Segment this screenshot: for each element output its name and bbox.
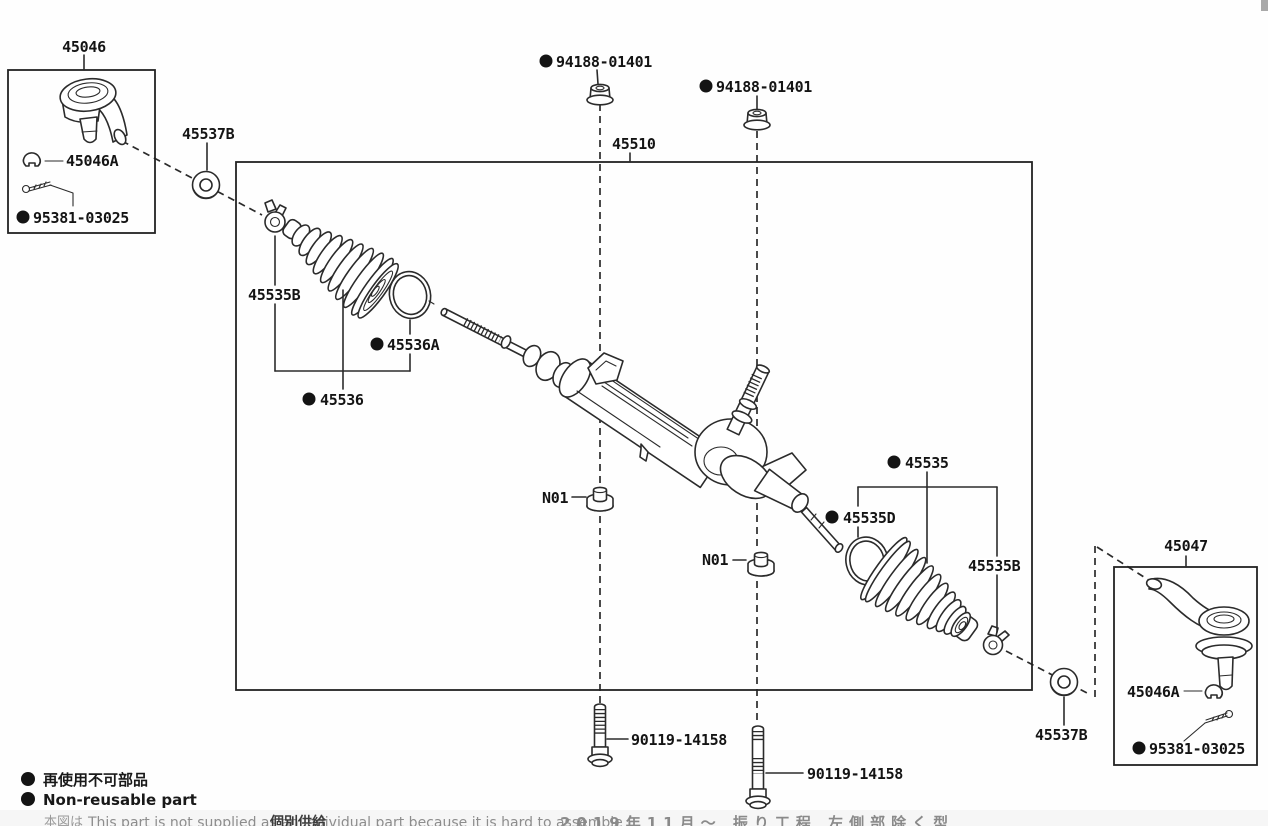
nut-45537B-left [193, 143, 220, 199]
non-reusable-bullet [540, 55, 553, 68]
bolt-90119-2 [746, 726, 803, 808]
label-45535B-right: 45535B [968, 557, 1021, 575]
label-N01-2: N01 [702, 551, 728, 569]
clip-icon-right [1205, 685, 1222, 698]
parts-diagram-page: 45046 45046A 95381-03025 45537B 94188-01… [0, 0, 1268, 826]
label-45535: 45535 [905, 454, 949, 472]
label-45046A-right: 45046A [1127, 683, 1180, 701]
boot-clamp-left [265, 200, 286, 232]
non-reusable-bullet [826, 511, 839, 524]
label-45537B-left: 45537B [182, 125, 235, 143]
label-94188-1: 94188-01401 [556, 53, 652, 71]
nut-N01-2 [733, 552, 774, 576]
exploded-diagram: 45046 45046A 95381-03025 45537B 94188-01… [0, 0, 1268, 826]
label-95381-left: 95381-03025 [33, 209, 129, 227]
non-reusable-bullet [17, 211, 30, 224]
tie-rod-end-right-drawing [1145, 577, 1252, 741]
label-45537B-right: 45537B [1035, 726, 1088, 744]
non-reusable-bullet [888, 456, 901, 469]
boot-left-drawing [266, 197, 404, 323]
label-95381-right: 95381-03025 [1149, 740, 1245, 758]
label-45536: 45536 [320, 391, 364, 409]
nut-N01-1 [572, 487, 613, 511]
cotter-pin-icon-right [1184, 711, 1233, 742]
non-reusable-bullet [371, 338, 384, 351]
page-corner-mark [1261, 0, 1268, 11]
non-reusable-bullets [17, 55, 1146, 807]
legend-text-cjk: 再使用不可部品 [43, 771, 148, 789]
label-90119-2: 90119-14158 [807, 765, 903, 783]
label-90119-1: 90119-14158 [631, 731, 727, 749]
label-45046A-left: 45046A [66, 152, 119, 170]
label-N01-1: N01 [542, 489, 568, 507]
steering-gear-drawing [440, 308, 844, 554]
bolt-90119-1 [588, 704, 628, 766]
non-reusable-bullet [303, 393, 316, 406]
non-reusable-bullet [700, 80, 713, 93]
label-45047: 45047 [1164, 537, 1208, 555]
label-45510: 45510 [612, 135, 656, 153]
nut-45537B-right [1051, 669, 1078, 726]
legend-bullet [21, 772, 35, 786]
label-45535D: 45535D [843, 509, 896, 527]
clip-icon-left [23, 153, 40, 166]
label-94188-2: 94188-01401 [716, 78, 812, 96]
cotter-pin-icon-left [23, 182, 74, 206]
legend-bullet [21, 792, 35, 806]
label-45535B-left: 45535B [248, 286, 301, 304]
nut-94188-2 [744, 96, 770, 130]
label-45046: 45046 [62, 38, 106, 56]
tie-rod-end-left-drawing [23, 76, 129, 206]
legend-text-en: Non-reusable part [43, 791, 197, 809]
label-45536A: 45536A [387, 336, 440, 354]
nut-94188-1 [587, 70, 613, 105]
non-reusable-bullet [1133, 742, 1146, 755]
